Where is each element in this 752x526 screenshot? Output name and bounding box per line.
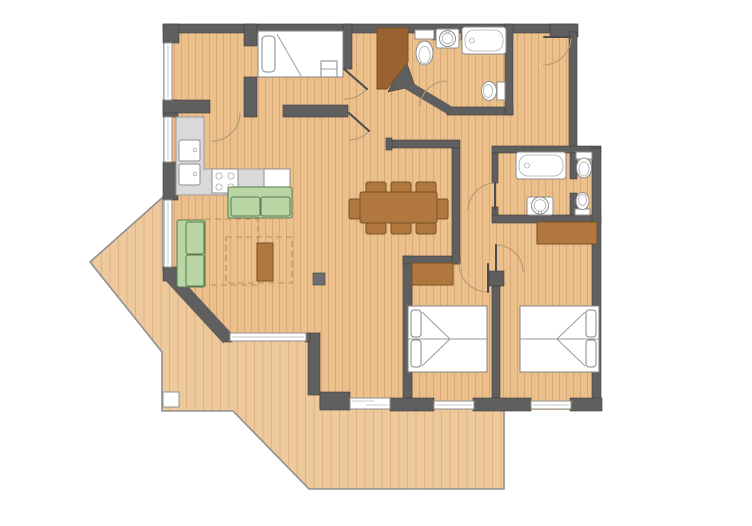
- double-bed-2-pillow-b: [586, 340, 596, 367]
- dining-chair-right: [437, 199, 448, 219]
- wall-pier-bedniche: [244, 24, 257, 46]
- wall-living-south-corner: [320, 392, 350, 410]
- wall-hall-south: [388, 140, 460, 148]
- double-bed-1: [408, 306, 487, 372]
- dining-table: [360, 192, 437, 223]
- toilet-1-bowl: [416, 41, 433, 65]
- wall-bathroom2-west-a: [492, 153, 498, 183]
- double-bed-2: [520, 306, 599, 372]
- double-bed-1-pillow-a: [411, 310, 421, 337]
- dining-chair-top-2: [391, 182, 411, 193]
- sofa-vertical-cushion-1: [186, 222, 204, 254]
- wall-kitchen-north: [163, 100, 210, 113]
- dining-chair-bottom-3: [416, 223, 436, 234]
- wall-corner-nw: [163, 24, 179, 43]
- single-bed: [258, 31, 343, 77]
- column-terrace: [163, 392, 179, 407]
- wardrobe-bedroom1: [412, 263, 453, 285]
- toilet-1-cistern: [415, 30, 434, 39]
- wall-pillar-bedrooms: [489, 271, 504, 286]
- wall-south-c: [570, 398, 602, 411]
- sofa-horizontal-cushion-2: [261, 197, 290, 216]
- wall-south-a: [390, 398, 434, 411]
- floor-plan: [0, 0, 752, 526]
- double-bed-1-pillow-b: [411, 340, 421, 367]
- wardrobe-bedroom2: [537, 222, 597, 244]
- bathtub-1: [462, 27, 506, 54]
- bidet-2-bowl: [576, 193, 589, 210]
- bidet-1-tank: [497, 82, 505, 100]
- wall-kitchen-east: [244, 77, 257, 117]
- dining-chair-left: [349, 199, 360, 219]
- wall-hall-post: [386, 138, 392, 150]
- wall-bedniche-east: [343, 24, 352, 69]
- wall-dressing-east: [569, 32, 577, 148]
- wall-bedrooms-divider: [492, 286, 500, 398]
- wall-corridor-west: [452, 148, 460, 264]
- wall-bathroom1-south: [447, 107, 513, 115]
- wall-kitchen-south: [283, 105, 348, 117]
- sofa-vertical-cushion-2: [186, 255, 204, 286]
- single-bed-pillow: [262, 36, 275, 72]
- dining-chair-bottom-1: [366, 223, 386, 234]
- coffee-table: [257, 243, 273, 281]
- wall-north: [163, 24, 577, 33]
- dining-chair-bottom-2: [391, 223, 411, 234]
- wall-south-b: [473, 398, 531, 411]
- dining-chair-top-3: [416, 182, 436, 193]
- dining-chair-top-1: [366, 182, 386, 193]
- column-interior: [313, 273, 325, 285]
- terrace-sliding-door: [350, 398, 390, 409]
- sofa-horizontal-cushion-1: [231, 197, 260, 216]
- double-bed-2-pillow-a: [586, 310, 596, 337]
